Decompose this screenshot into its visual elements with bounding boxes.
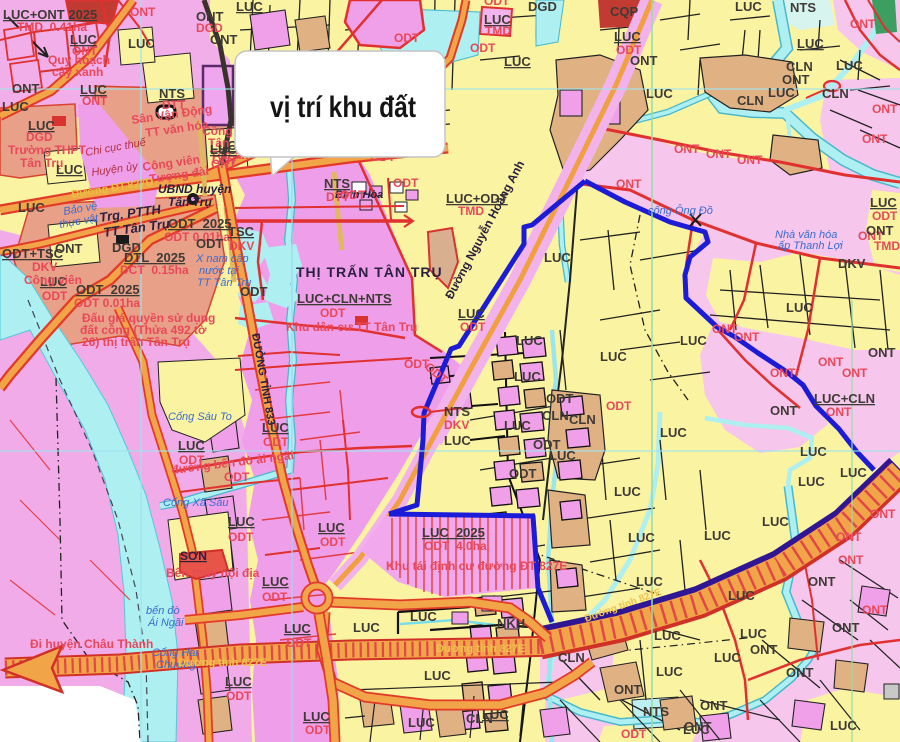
svg-text:ONT: ONT	[826, 405, 852, 419]
svg-text:ONT: ONT	[842, 366, 868, 380]
svg-text:ODT: ODT	[286, 636, 312, 650]
svg-text:LUC: LUC	[654, 628, 681, 643]
svg-text:LUC: LUC	[683, 722, 710, 737]
svg-text:LUC: LUC	[18, 200, 45, 215]
svg-text:TSC: TSC	[228, 224, 255, 239]
svg-text:ODT: ODT	[179, 453, 205, 467]
svg-text:CLN: CLN	[822, 86, 849, 101]
svg-text:SƠN: SƠN	[180, 549, 207, 563]
svg-text:TT Tân Trụ: TT Tân Trụ	[197, 277, 251, 289]
svg-text:ONT: ONT	[850, 17, 876, 31]
svg-text:DKV: DKV	[444, 418, 469, 432]
svg-text:CLN: CLN	[542, 408, 569, 423]
svg-text:CLN: CLN	[558, 650, 585, 665]
svg-text:LUC: LUC	[2, 99, 29, 114]
svg-text:TMD: TMD	[485, 24, 511, 38]
svg-text:ODT: ODT	[263, 435, 289, 449]
svg-text:CLN: CLN	[737, 93, 764, 108]
svg-text:LUC: LUC	[408, 715, 435, 730]
svg-text:NTS: NTS	[790, 0, 816, 15]
svg-text:LUC: LUC	[178, 438, 205, 453]
svg-text:DKV: DKV	[838, 256, 866, 271]
svg-text:LUC: LUC	[516, 333, 543, 348]
svg-text:ODT: ODT	[509, 466, 537, 481]
svg-text:Tân Trụ: Tân Trụ	[168, 195, 212, 209]
svg-text:ONT: ONT	[832, 620, 860, 635]
svg-text:Ái Ngãi: Ái Ngãi	[147, 616, 184, 629]
svg-text:ODT: ODT	[394, 31, 420, 45]
svg-text:LUC: LUC	[544, 250, 571, 265]
svg-text:LUC: LUC	[786, 300, 813, 315]
svg-text:Cống Sáu To: Cống Sáu To	[168, 411, 232, 423]
svg-text:NKH: NKH	[497, 616, 525, 631]
svg-text:ODT: ODT	[228, 530, 254, 544]
svg-text:ONT: ONT	[868, 345, 896, 360]
svg-text:26) thị trấn Tân Trụ: 26) thị trấn Tân Trụ	[82, 335, 190, 349]
svg-text:Đường tỉnh 827E: Đường tỉnh 827E	[436, 643, 525, 655]
svg-text:ONT: ONT	[838, 553, 864, 567]
svg-text:LUC: LUC	[762, 514, 789, 529]
svg-text:ONT: ONT	[770, 403, 798, 418]
svg-text:LUC: LUC	[628, 530, 655, 545]
svg-text:LUC: LUC	[797, 36, 824, 51]
svg-text:LUC: LUC	[236, 0, 263, 14]
svg-text:CLN: CLN	[569, 412, 596, 427]
svg-text:LUC: LUC	[318, 520, 345, 535]
svg-text:LUC: LUC	[680, 333, 707, 348]
svg-text:LUC: LUC	[444, 433, 471, 448]
svg-text:LUC: LUC	[600, 349, 627, 364]
svg-text:DCT 0.15ha: DCT 0.15ha	[120, 263, 189, 277]
svg-text:LUC 2025: LUC 2025	[422, 525, 485, 540]
svg-text:cây xanh: cây xanh	[52, 65, 103, 79]
svg-text:ODT: ODT	[226, 689, 252, 703]
svg-text:LUC: LUC	[504, 54, 531, 69]
svg-text:NTS: NTS	[444, 404, 470, 419]
svg-text:LUC+CLN: LUC+CLN	[814, 391, 875, 406]
svg-text:DGD: DGD	[196, 21, 223, 35]
svg-text:ONT: ONT	[700, 698, 728, 713]
svg-text:ODT: ODT	[262, 590, 288, 604]
svg-text:LUC: LUC	[549, 448, 576, 463]
svg-text:LUC: LUC	[800, 444, 827, 459]
svg-text:DGD: DGD	[528, 0, 557, 14]
svg-text:cống Ông Đồ: cống Ông Đồ	[648, 204, 713, 217]
svg-text:ONT: ONT	[786, 665, 814, 680]
svg-text:Bến thủy nội địa: Bến thủy nội địa	[166, 566, 260, 580]
svg-text:DKV: DKV	[229, 239, 254, 253]
svg-text:ODT: ODT	[42, 289, 68, 303]
svg-text:Cống Xã Sáu: Cống Xã Sáu	[163, 497, 228, 509]
svg-text:ONT: ONT	[862, 603, 888, 617]
svg-text:ONT: ONT	[706, 147, 732, 161]
svg-text:LUC: LUC	[798, 474, 825, 489]
svg-text:ODT+TSC: ODT+TSC	[2, 246, 64, 261]
svg-text:ODT: ODT	[484, 0, 510, 8]
svg-text:LUC: LUC	[646, 86, 673, 101]
svg-text:ONT: ONT	[872, 102, 898, 116]
svg-text:LUC: LUC	[210, 142, 237, 157]
svg-text:THỊ TRẤN TÂN TRỤ: THỊ TRẤN TÂN TRỤ	[296, 263, 443, 280]
svg-text:LUC: LUC	[228, 514, 255, 529]
svg-text:ONT: ONT	[866, 223, 894, 238]
svg-text:ODT: ODT	[196, 236, 224, 251]
svg-text:ONT: ONT	[130, 5, 156, 19]
svg-text:Trường THPT: Trường THPT	[8, 143, 87, 157]
svg-text:ONT: ONT	[12, 81, 40, 96]
svg-text:ODT: ODT	[621, 727, 647, 741]
svg-text:ONT: ONT	[616, 177, 642, 191]
svg-text:LUC: LUC	[353, 620, 380, 635]
svg-text:CLN: CLN	[466, 711, 493, 726]
svg-text:LUC: LUC	[56, 162, 83, 177]
svg-text:ODT: ODT	[224, 470, 250, 484]
svg-text:ODT 0.01ha: ODT 0.01ha	[74, 296, 140, 310]
svg-text:DKV: DKV	[32, 260, 57, 274]
svg-text:LUC: LUC	[303, 709, 330, 724]
svg-text:Khu dân cư TT Tân Trụ: Khu dân cư TT Tân Trụ	[286, 320, 417, 334]
svg-text:ONT: ONT	[862, 132, 888, 146]
svg-text:LUC: LUC	[410, 609, 437, 624]
svg-text:LUC: LUC	[504, 418, 531, 433]
svg-text:LUC: LUC	[728, 588, 755, 603]
svg-text:LUC: LUC	[128, 36, 155, 51]
svg-text:LUC: LUC	[704, 528, 731, 543]
svg-text:LUC: LUC	[740, 626, 767, 641]
svg-text:ONT: ONT	[614, 682, 642, 697]
svg-text:ONT: ONT	[808, 574, 836, 589]
svg-text:ODT: ODT	[470, 41, 496, 55]
svg-text:bến đò: bến đò	[146, 605, 180, 617]
svg-text:ONT: ONT	[211, 157, 237, 171]
svg-text:ODT: ODT	[340, 188, 366, 202]
svg-text:X nam cấp: X nam cấp	[195, 253, 249, 265]
svg-text:LUC: LUC	[870, 195, 897, 210]
svg-text:Công viên: Công viên	[24, 273, 82, 287]
svg-text:ONT: ONT	[674, 142, 700, 156]
svg-text:ấp Thanh Lợi: ấp Thanh Lợi	[778, 240, 843, 252]
svg-text:LUC: LUC	[735, 0, 762, 14]
svg-text:LUC: LUC	[614, 29, 641, 44]
svg-text:LUC: LUC	[656, 664, 683, 679]
svg-text:Đi huyện Châu Thành: Đi huyện Châu Thành	[30, 637, 153, 651]
svg-text:ODT: ODT	[320, 306, 346, 320]
svg-text:ODT: ODT	[460, 320, 486, 334]
svg-text:UBND huyện: UBND huyện	[158, 182, 231, 196]
svg-text:Đường tỉnh 827E: Đường tỉnh 827E	[178, 657, 267, 669]
svg-text:vị trí khu đất: vị trí khu đất	[270, 91, 416, 124]
svg-text:LUC: LUC	[424, 668, 451, 683]
svg-text:ONT: ONT	[818, 355, 844, 369]
svg-text:ONT: ONT	[770, 366, 796, 380]
svg-text:ONT: ONT	[836, 530, 862, 544]
svg-text:ODT 2025: ODT 2025	[168, 216, 232, 231]
svg-text:ONT: ONT	[737, 153, 763, 167]
svg-text:ONT: ONT	[750, 642, 778, 657]
svg-text:LUC: LUC	[840, 465, 867, 480]
svg-text:LUC: LUC	[225, 674, 252, 689]
svg-text:NTS: NTS	[643, 704, 669, 719]
svg-text:ODT: ODT	[320, 535, 346, 549]
svg-text:ODT: ODT	[393, 176, 419, 190]
svg-text:LUC: LUC	[768, 85, 795, 100]
svg-text:ODT: ODT	[606, 399, 632, 413]
svg-text:TMD: TMD	[458, 204, 484, 218]
svg-text:ODT: ODT	[305, 723, 331, 737]
svg-text:ODT 2025: ODT 2025	[76, 282, 140, 297]
svg-text:LUC: LUC	[458, 306, 485, 321]
svg-text:Khu tái định cư đường ĐT 827E: Khu tái định cư đường ĐT 827E	[386, 559, 567, 573]
svg-text:LUC: LUC	[714, 650, 741, 665]
svg-text:ONT: ONT	[630, 53, 658, 68]
svg-text:LUC: LUC	[614, 484, 641, 499]
svg-text:CQP: CQP	[610, 4, 639, 19]
svg-text:LUC: LUC	[660, 425, 687, 440]
svg-text:ONT: ONT	[734, 330, 760, 344]
svg-text:TMD: TMD	[874, 239, 900, 253]
svg-text:LUC: LUC	[836, 58, 863, 73]
svg-text:ODT 4.0ha: ODT 4.0ha	[424, 539, 487, 553]
svg-text:LUC: LUC	[262, 574, 289, 589]
svg-text:LUC: LUC	[284, 621, 311, 636]
svg-text:ONT: ONT	[82, 94, 108, 108]
svg-text:LUC+CLN+NTS: LUC+CLN+NTS	[297, 291, 392, 306]
svg-text:ODT: ODT	[872, 209, 898, 223]
svg-text:ONT: ONT	[870, 507, 896, 521]
svg-text:DGD: DGD	[26, 130, 53, 144]
svg-text:nước tại: nước tại	[199, 265, 239, 277]
svg-text:ODT: ODT	[546, 391, 574, 406]
svg-text:LUC: LUC	[830, 718, 857, 733]
svg-text:LUC: LUC	[514, 369, 541, 384]
